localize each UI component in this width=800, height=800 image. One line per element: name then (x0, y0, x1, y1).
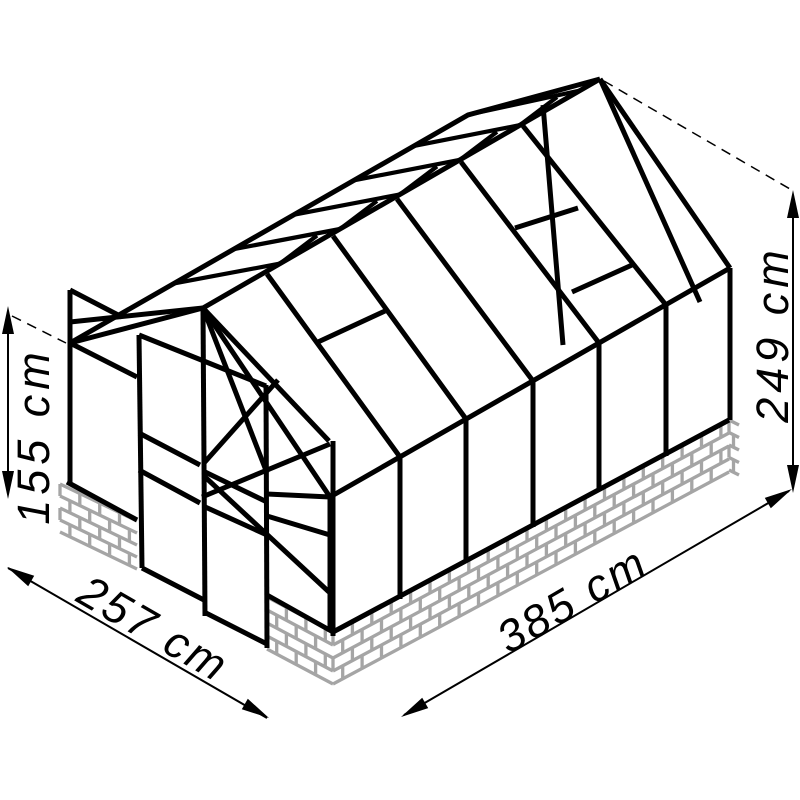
svg-text:155 cm: 155 cm (8, 347, 59, 525)
svg-text:257 cm: 257 cm (68, 565, 238, 693)
svg-text:249 cm: 249 cm (747, 245, 798, 424)
